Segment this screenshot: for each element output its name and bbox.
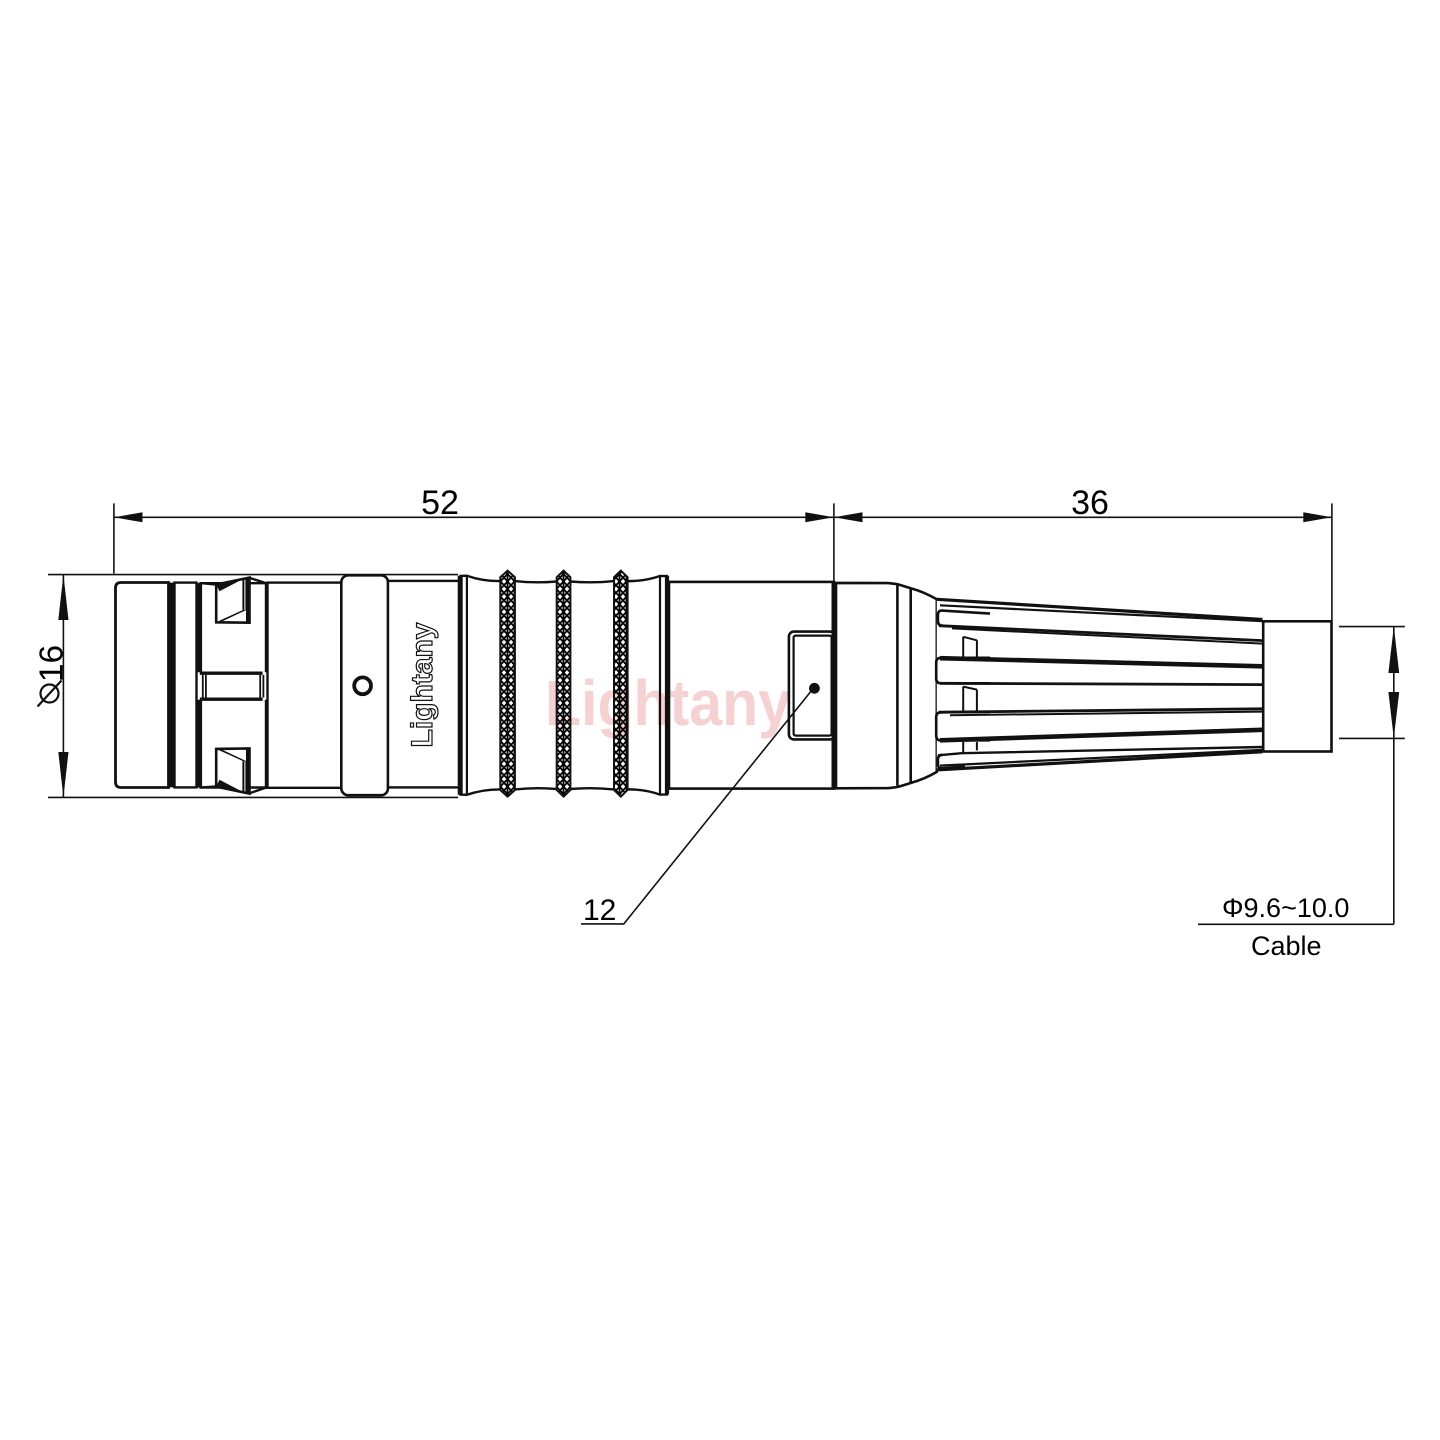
svg-text:Φ9.6~10.0: Φ9.6~10.0 [1222,893,1349,923]
svg-text:Cable: Cable [1251,931,1322,961]
svg-text:Lightany: Lightany [406,622,439,747]
svg-text:Lightany: Lightany [545,667,791,739]
svg-text:16: 16 [34,645,71,682]
svg-text:52: 52 [421,484,459,522]
svg-text:12: 12 [583,894,616,927]
svg-text:36: 36 [1071,484,1109,522]
